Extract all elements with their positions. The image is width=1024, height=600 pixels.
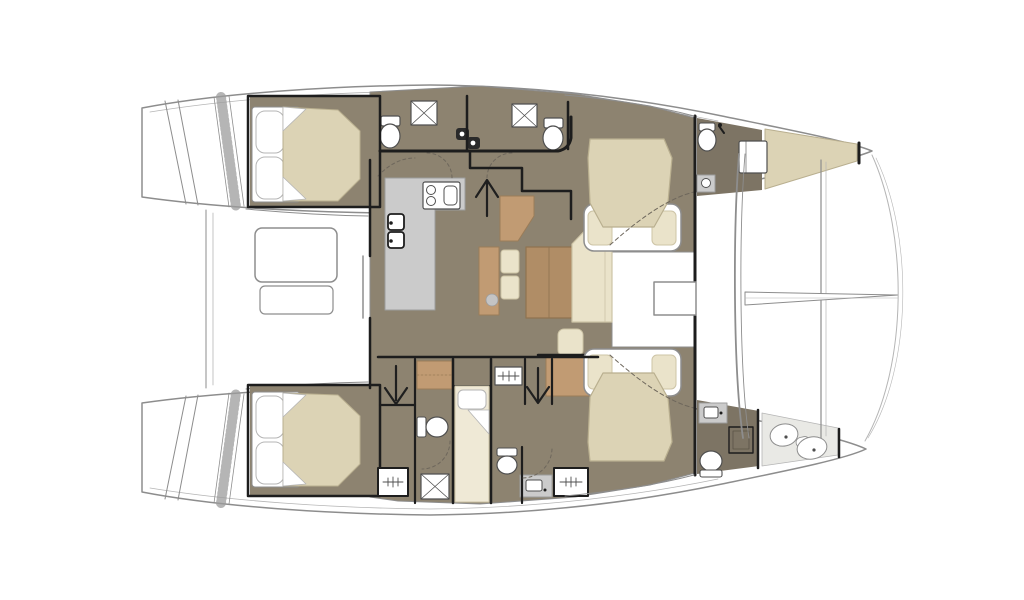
toilet-top-right-bowl [543,126,563,150]
toilet-top-left-bowl [380,124,400,148]
cabin-aft-top-mattress [283,107,360,201]
stove-burner-2 [427,197,436,206]
toilet-bow-bottom-tank [700,470,722,477]
cabin-aft-bottom-mattress [283,393,360,486]
fwd-cabin-bottom-bed [588,373,672,461]
dinette-cushion-2 [501,276,519,299]
cabin-aft-top-pillow-1 [256,111,284,153]
cabin-aft-top-pillow-2 [256,157,284,199]
dinette-cushion-1 [501,250,519,273]
corridor-berth-pillow [458,390,486,409]
pouf [486,294,498,306]
toilet-bow-bottom-bowl [700,451,722,471]
floorplan-canvas [0,0,1024,600]
faucet-bow-top-dot [718,123,722,127]
forepeak-basin-dot-2 [812,448,815,451]
vanity-mid-right-sink [526,480,542,491]
floorplan-svg [0,0,1024,600]
galley-faucet-2 [389,239,393,243]
bow-berth-top [765,129,857,189]
toilet-mid-left-tank [417,417,426,437]
cockpit-bench [260,286,333,314]
toilet-bow-top-bowl [698,129,716,151]
vanity-basin-dot-1 [460,132,465,137]
galley-faucet-1 [389,221,393,225]
toilet-mid-right-bowl [497,456,517,474]
vanity-bow-bottom-dot [720,412,723,415]
cabin-aft-bottom-pillow-1 [256,396,284,438]
stove-sink [444,186,457,205]
vanity-mid-right-dot [544,489,547,492]
forepeak-basin-dot-1 [784,435,787,438]
shower-bow-top [739,141,767,173]
cockpit-table [255,228,337,282]
vanity-basin-dot-2 [471,141,476,146]
toilet-mid-right-tank [497,448,517,456]
deck-hatch [654,282,696,315]
crossbeam-line-1 [735,154,743,438]
vanity-bow-top-sink [702,179,711,188]
toilet-mid-left-bowl [426,417,448,437]
stove-burner-1 [427,186,436,195]
floorplan-shapes [142,85,903,515]
salon-stool [558,329,583,356]
cabin-aft-bottom-pillow-2 [256,442,284,484]
vanity-bow-bottom-sink [704,407,718,418]
fwd-cabin-top-bed [588,139,672,227]
